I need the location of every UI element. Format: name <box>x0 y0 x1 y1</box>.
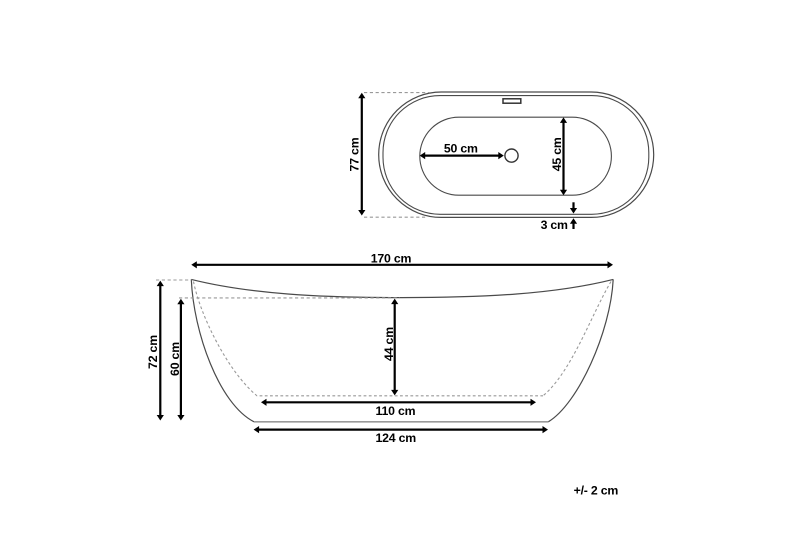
svg-text:50 cm: 50 cm <box>444 141 478 155</box>
svg-text:72 cm: 72 cm <box>146 335 160 369</box>
svg-text:3 cm: 3 cm <box>541 218 568 232</box>
svg-text:77 cm: 77 cm <box>347 137 361 171</box>
svg-text:44 cm: 44 cm <box>382 327 396 361</box>
svg-text:124 cm: 124 cm <box>376 431 417 445</box>
svg-text:60 cm: 60 cm <box>168 342 182 376</box>
svg-text:170 cm: 170 cm <box>371 252 412 266</box>
svg-text:110 cm: 110 cm <box>375 404 415 418</box>
svg-text:45 cm: 45 cm <box>550 137 564 171</box>
svg-text:+/- 2 cm: +/- 2 cm <box>574 484 619 498</box>
